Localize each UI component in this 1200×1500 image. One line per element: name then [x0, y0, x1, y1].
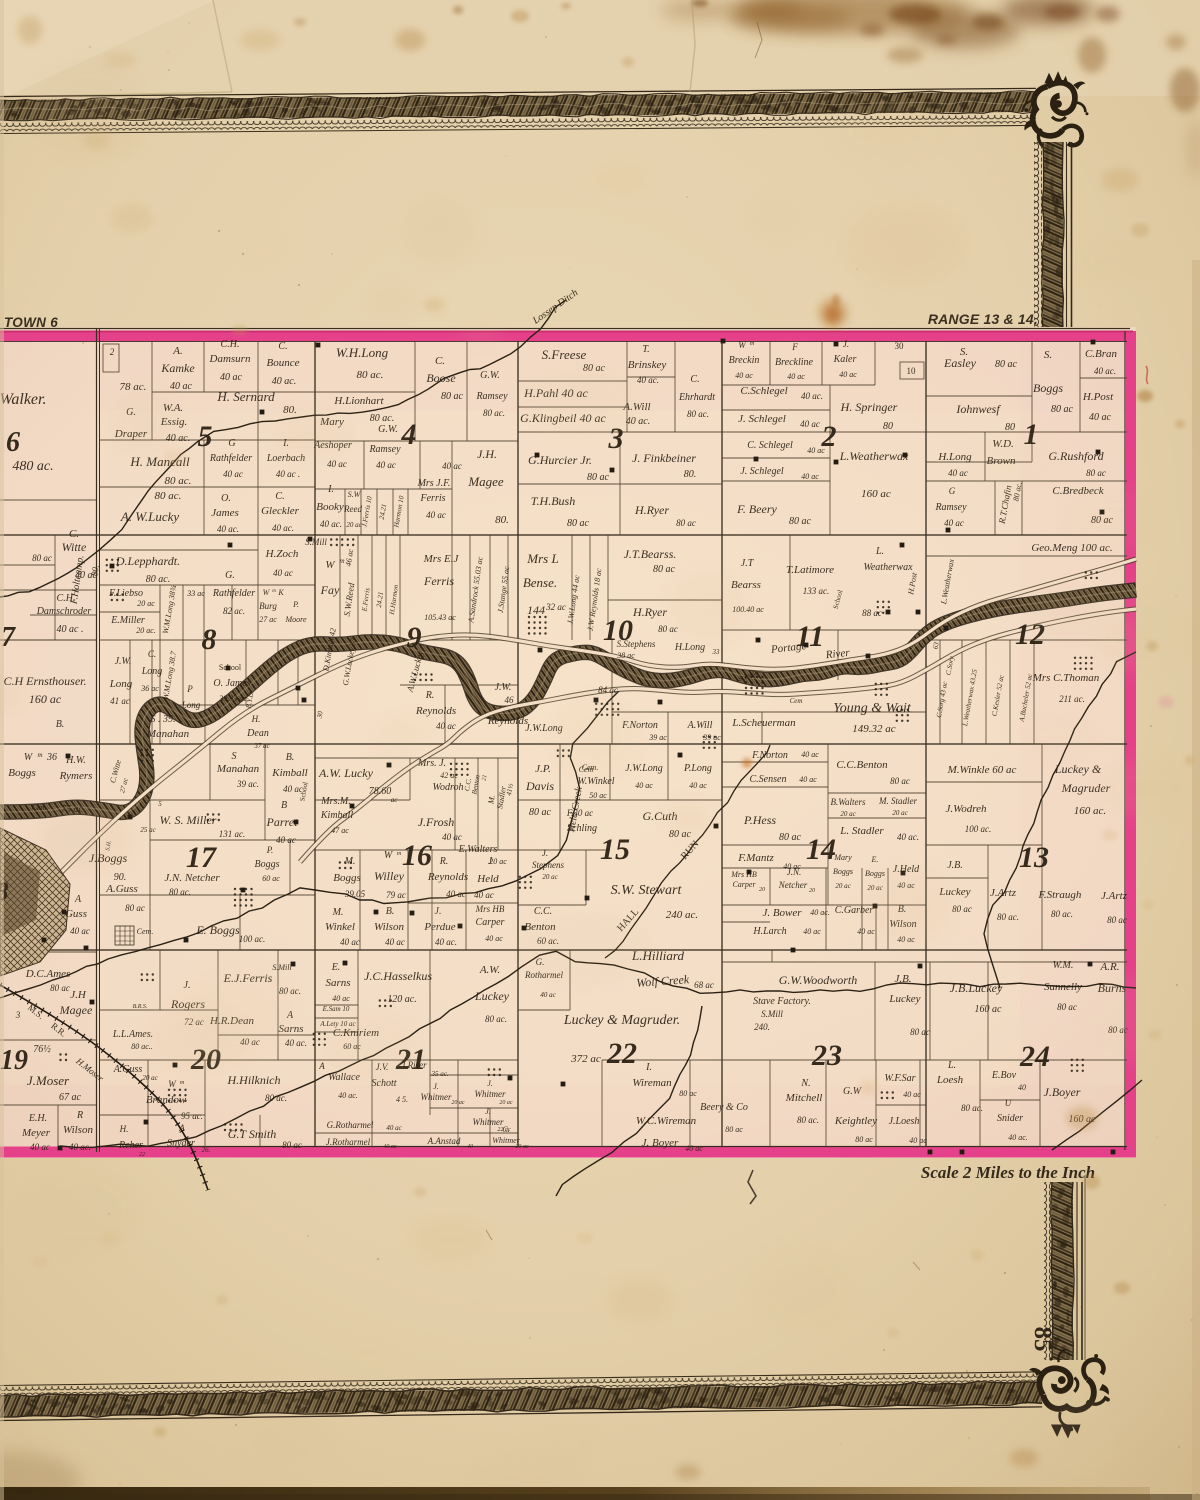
svg-text:80 ac.: 80 ac. [483, 408, 505, 418]
svg-text:S.Mill: S.Mill [272, 963, 292, 972]
svg-text:m: m [37, 751, 42, 759]
svg-text:30: 30 [895, 341, 905, 351]
svg-text:D.C.Ames: D.C.Ames [25, 968, 71, 980]
svg-text:A.R.: A.R. [1100, 961, 1120, 973]
svg-text:TOWN 6: TOWN 6 [4, 315, 58, 330]
svg-text:Walker.: Walker. [0, 391, 46, 408]
svg-text:J.C.Hasselkus: J.C.Hasselkus [364, 969, 432, 983]
svg-text:80 ac: 80 ac [50, 983, 70, 993]
svg-text:46: 46 [505, 695, 515, 705]
svg-text:80 ac: 80 ac [676, 518, 696, 528]
svg-text:40 ac: 40 ac [385, 937, 405, 947]
svg-text:C.C.Benton: C.C.Benton [836, 759, 888, 771]
svg-text:Bense.: Bense. [523, 575, 557, 590]
svg-text:Whitmer: Whitmer [473, 1117, 504, 1127]
svg-text:Rathfelder: Rathfelder [209, 453, 252, 464]
svg-text:40 ac: 40 ac [70, 926, 90, 936]
svg-text:80 ac: 80 ac [789, 516, 812, 527]
svg-text:G: G [228, 438, 235, 449]
svg-text:15: 15 [600, 833, 630, 866]
svg-text:H.Long: H.Long [674, 642, 705, 653]
svg-text:80 ac.: 80 ac. [797, 1115, 819, 1125]
svg-text:Booky: Booky [316, 501, 344, 513]
svg-text:105.43 ac: 105.43 ac [424, 613, 456, 622]
svg-text:76½: 76½ [33, 1044, 51, 1055]
svg-text:Whitmer: Whitmer [421, 1092, 452, 1102]
svg-text:Winkel: Winkel [325, 921, 355, 933]
svg-text:A: A [178, 1123, 185, 1133]
svg-text:40 ac.: 40 ac. [320, 519, 342, 529]
svg-text:H.Ryer: H.Ryer [634, 503, 669, 517]
svg-text:H.Lionhart: H.Lionhart [333, 395, 384, 407]
svg-text:ac: ac [391, 796, 399, 804]
svg-text:C.H.: C.H. [221, 339, 240, 350]
svg-text:E.Sam 10: E.Sam 10 [322, 1005, 350, 1013]
svg-text:80 ac: 80 ac [653, 564, 676, 575]
svg-text:40 ac.: 40 ac. [338, 1091, 358, 1100]
svg-text:68 ac: 68 ac [694, 980, 714, 990]
svg-text:Luckey: Luckey [888, 993, 920, 1005]
svg-text:J.: J. [485, 1107, 491, 1116]
svg-text:80 ac: 80 ac [1086, 468, 1106, 478]
svg-text:J.W.: J.W. [495, 682, 512, 693]
svg-text:C.Schlegel: C.Schlegel [740, 385, 787, 397]
svg-text:H. Springer: H. Springer [840, 400, 898, 414]
svg-text:20 ac: 20 ac [142, 1074, 158, 1082]
svg-text:A.Guss: A.Guss [105, 883, 137, 895]
svg-text:J.N.: J.N. [787, 867, 802, 877]
svg-text:8: 8 [202, 623, 217, 656]
svg-text:40 ac.: 40 ac. [801, 391, 823, 401]
svg-text:39.05: 39.05 [344, 889, 366, 899]
svg-text:Whitmer: Whitmer [475, 1089, 506, 1099]
svg-text:39 ac.: 39 ac. [236, 779, 259, 789]
svg-text:80 ac: 80 ac [125, 903, 145, 913]
svg-text:25 ac: 25 ac [140, 826, 156, 834]
svg-text:F.Norton: F.Norton [751, 750, 788, 761]
svg-text:372 ac: 372 ac [570, 1053, 601, 1065]
svg-text:40 ac.: 40 ac. [217, 524, 239, 534]
svg-text:Kaler: Kaler [833, 354, 857, 365]
svg-text:80 ac.: 80 ac. [1051, 909, 1073, 919]
svg-text:40 ac: 40 ac [803, 927, 821, 936]
svg-text:20 ac: 20 ac [137, 599, 155, 608]
svg-text:Rymers: Rymers [59, 770, 93, 782]
svg-text:40 ac .: 40 ac . [57, 624, 84, 635]
svg-text:Stephens: Stephens [532, 860, 564, 870]
svg-text:Ramsey: Ramsey [475, 391, 508, 402]
svg-text:80 ac.: 80 ac. [997, 912, 1019, 922]
svg-text:Iohnwesf: Iohnwesf [955, 402, 1001, 416]
svg-text:J.: J. [843, 339, 849, 349]
svg-text:Mrs L: Mrs L [526, 551, 558, 566]
svg-text:Mrs C.Thoman: Mrs C.Thoman [1032, 672, 1100, 684]
svg-text:20 ac: 20 ac [840, 810, 856, 818]
svg-text:80 ac: 80 ac [952, 904, 972, 914]
svg-text:Weatherwax: Weatherwax [863, 562, 913, 573]
svg-text:40 ac: 40 ac [220, 372, 243, 383]
svg-text:L.: L. [875, 546, 884, 557]
svg-text:20: 20 [759, 887, 765, 893]
svg-text:J: J [488, 856, 493, 867]
svg-text:A.W.: A.W. [479, 964, 500, 976]
svg-text:I.: I. [327, 484, 334, 495]
svg-text:80: 80 [883, 421, 893, 432]
svg-text:33 ac: 33 ac [186, 589, 205, 598]
svg-text:J.P.: J.P. [535, 763, 551, 775]
svg-text:Ramsey: Ramsey [934, 502, 967, 513]
svg-text:20 ac: 20 ac [515, 1144, 529, 1150]
svg-text:40 ac.: 40 ac. [272, 523, 294, 533]
svg-text:L. Stadler: L. Stadler [839, 825, 884, 837]
svg-text:M. Stadler: M. Stadler [878, 796, 917, 806]
svg-text:2: 2 [110, 347, 115, 357]
svg-text:20: 20 [809, 888, 815, 894]
svg-text:J.B.Luckey: J.B.Luckey [950, 981, 1003, 995]
svg-text:A: A [318, 1061, 325, 1071]
svg-text:Wireman: Wireman [632, 1077, 672, 1089]
svg-text:Kamke: Kamke [160, 361, 195, 375]
svg-text:40 ac: 40 ac [442, 461, 462, 471]
svg-text:m: m [180, 1080, 185, 1086]
svg-text:131 ac.: 131 ac. [219, 829, 246, 839]
svg-text:40 ac: 40 ac [1089, 412, 1112, 423]
svg-text:80: 80 [1005, 422, 1015, 433]
svg-text:240 ac.: 240 ac. [666, 909, 698, 921]
svg-text:Magee: Magee [467, 474, 504, 489]
svg-text:133 ac.: 133 ac. [803, 586, 830, 596]
svg-text:Boose: Boose [426, 371, 456, 385]
svg-text:Reher: Reher [118, 1140, 143, 1151]
svg-text:S.W: S.W [348, 490, 362, 499]
svg-text:Cem: Cem [790, 697, 803, 705]
svg-text:40 ac: 40 ac [801, 472, 819, 481]
svg-text:C.: C. [502, 1125, 509, 1134]
svg-text:S.W. Stewart: S.W. Stewart [611, 883, 683, 898]
svg-text:Held: Held [476, 873, 499, 885]
svg-text:80 ac: 80 ac [529, 807, 552, 818]
svg-text:3: 3 [15, 1010, 21, 1020]
svg-text:40 ac: 40 ac [635, 781, 653, 790]
svg-text:A.Anstad: A.Anstad [427, 1136, 461, 1146]
svg-text:Ramsey: Ramsey [368, 444, 401, 455]
svg-text:22: 22 [139, 1152, 145, 1158]
svg-text:Sarns: Sarns [325, 977, 350, 989]
svg-text:S.Freese: S.Freese [542, 347, 587, 362]
svg-text:80 ac: 80 ac [567, 518, 590, 529]
svg-text:Mrs HB: Mrs HB [475, 904, 505, 914]
svg-text:Long: Long [181, 700, 201, 710]
svg-text:40 ac: 40 ac [485, 934, 503, 943]
svg-text:J.H: J.H [70, 989, 87, 1001]
svg-text:W.H.Long: W.H.Long [336, 345, 389, 360]
svg-text:80 ac.: 80 ac. [961, 1103, 983, 1113]
svg-text:144: 144 [527, 603, 545, 617]
svg-text:40 ac.: 40 ac. [69, 1142, 91, 1152]
svg-text:J.H.: J.H. [477, 447, 497, 461]
svg-text:W.F.Sar: W.F.Sar [884, 1073, 915, 1084]
svg-text:Kimball: Kimball [271, 767, 307, 779]
svg-text:80.: 80. [495, 514, 509, 526]
svg-text:C.: C. [278, 341, 287, 352]
svg-text:F. Beery: F. Beery [736, 502, 777, 516]
svg-text:J.: J. [433, 1082, 439, 1091]
svg-text:40 ac .: 40 ac . [276, 469, 300, 479]
svg-text:100 ac.: 100 ac. [965, 824, 992, 834]
svg-text:Scale 2 Miles to the Inch: Scale 2 Miles to the Inch [921, 1163, 1095, 1182]
svg-text:L.: L. [947, 1060, 956, 1071]
svg-text:40 ac: 40 ac [442, 832, 462, 842]
svg-text:O. James: O. James [213, 678, 250, 689]
svg-text:40 ac: 40 ac [903, 1090, 921, 1099]
svg-text:4: 4 [401, 418, 417, 451]
svg-text:40 ac: 40 ac [807, 446, 825, 455]
svg-text:E.: E. [871, 855, 879, 864]
svg-text:40 ac: 40 ac [386, 1124, 402, 1132]
svg-text:37 ac: 37 ac [253, 742, 270, 750]
svg-text:80 ac.: 80 ac. [687, 409, 709, 419]
svg-text:82 ac.: 82 ac. [223, 606, 245, 616]
svg-text:40 ac.: 40 ac. [897, 832, 919, 842]
svg-text:U: U [1005, 1098, 1012, 1108]
svg-text:80.: 80. [89, 564, 100, 577]
svg-text:Easley: Easley [943, 356, 977, 370]
svg-text:20 ac: 20 ac [499, 1100, 513, 1106]
svg-text:149.32 ac: 149.32 ac [852, 723, 896, 735]
svg-text:J.Loesh: J.Loesh [889, 1116, 920, 1127]
svg-text:C.Sensen: C.Sensen [750, 774, 787, 785]
svg-text:40 ac: 40 ac [426, 510, 446, 520]
svg-text:Long: Long [109, 678, 133, 690]
svg-text:211 ac.: 211 ac. [1059, 694, 1085, 704]
svg-text:5: 5 [198, 420, 213, 453]
svg-text:Wilson: Wilson [374, 921, 404, 933]
svg-text:11: 11 [796, 620, 824, 653]
svg-text:26.: 26. [202, 1146, 211, 1154]
svg-text:G: G [949, 486, 956, 496]
svg-text:60 ac: 60 ac [262, 874, 280, 883]
svg-text:Young & Wait: Young & Wait [833, 701, 912, 716]
svg-text:80 ac: 80 ac [890, 776, 910, 786]
svg-text:Manahan: Manahan [216, 763, 260, 775]
svg-text:RANGE 13 & 14.: RANGE 13 & 14. [928, 311, 1038, 327]
svg-text:G.T Smith: G.T Smith [228, 1127, 276, 1141]
svg-text:80 ac: 80 ac [1057, 1002, 1077, 1012]
svg-text:39 ac: 39 ac [702, 733, 721, 742]
svg-text:J.: J. [542, 848, 548, 858]
svg-text:Witte: Witte [62, 540, 87, 554]
svg-text:C.: C. [275, 491, 284, 502]
svg-text:C.H.: C.H. [57, 593, 76, 604]
svg-text:80 ac: 80 ac [1051, 404, 1074, 415]
svg-text:E.Bov: E.Bov [991, 1070, 1017, 1081]
svg-text:J. Finkbeiner: J. Finkbeiner [632, 451, 696, 465]
svg-text:Boggs: Boggs [1033, 381, 1063, 395]
svg-text:40 ac: 40 ac [735, 371, 753, 380]
svg-text:H.Zoch: H.Zoch [265, 548, 299, 560]
svg-text:40 ac.: 40 ac. [1094, 366, 1116, 376]
svg-text:C.: C. [69, 528, 79, 540]
svg-text:Luckey & Magruder.: Luckey & Magruder. [563, 1013, 680, 1028]
svg-text:Sannelly: Sannelly [1044, 981, 1082, 993]
svg-text:H.Post: H.Post [1082, 391, 1114, 403]
svg-text:J.Boyer: J.Boyer [1044, 1085, 1081, 1099]
svg-text:80 ac: 80 ac [1107, 915, 1127, 925]
svg-text:40 ac: 40 ac [327, 459, 347, 469]
svg-text:T.: T. [642, 344, 649, 355]
svg-text:23: 23 [811, 1039, 842, 1072]
svg-text:J.Frosh: J.Frosh [418, 815, 455, 829]
svg-text:40 ac: 40 ac [948, 468, 968, 478]
svg-text:40 ac: 40 ac [332, 994, 350, 1003]
svg-text:H.Hilknich: H.Hilknich [227, 1073, 281, 1087]
svg-text:Cem.: Cem. [32, 803, 49, 812]
svg-text:Snyder: Snyder [167, 1138, 195, 1149]
svg-text:40 ac: 40 ac [540, 991, 556, 999]
svg-text:Magee: Magee [59, 1003, 93, 1017]
svg-text:40 ac.: 40 ac. [1008, 1133, 1028, 1142]
svg-text:40 ac.: 40 ac. [435, 937, 457, 947]
svg-text:Willey: Willey [374, 869, 405, 883]
svg-text:Luckey: Luckey [474, 989, 510, 1003]
svg-text:B: B [281, 800, 287, 811]
svg-text:40 ac: 40 ac [801, 750, 819, 759]
svg-text:L.Scheuerman: L.Scheuerman [731, 717, 796, 729]
svg-text:Kimball: Kimball [320, 810, 353, 821]
svg-text:J.Wodreh: J.Wodreh [945, 803, 987, 815]
svg-text:95 ac.: 95 ac. [181, 1111, 203, 1121]
svg-text:20 ac: 20 ac [451, 1100, 465, 1106]
svg-text:240.: 240. [754, 1022, 770, 1032]
svg-text:80 ac.: 80 ac. [169, 887, 191, 897]
svg-text:J.W.: J.W. [115, 656, 132, 667]
svg-text:J.T.Bearss.: J.T.Bearss. [624, 547, 677, 561]
svg-text:Damschroder: Damschroder [36, 606, 92, 617]
svg-text:H.: H. [119, 1124, 129, 1134]
svg-text:160 ac: 160 ac [29, 692, 62, 706]
svg-text:9: 9 [407, 621, 422, 654]
svg-text:80 ac.: 80 ac. [485, 1014, 507, 1024]
svg-text:R.: R. [425, 690, 435, 701]
svg-text:S.Mill: S.Mill [761, 1009, 783, 1019]
svg-text:Breckline: Breckline [775, 357, 814, 368]
svg-text:Moore: Moore [284, 615, 306, 624]
svg-text:5: 5 [158, 800, 162, 808]
svg-text:Loesh: Loesh [936, 1074, 964, 1086]
svg-text:Brinskey: Brinskey [628, 359, 667, 371]
svg-text:James: James [211, 507, 239, 519]
svg-text:C.: C. [148, 649, 156, 659]
svg-text:14: 14 [806, 833, 836, 866]
svg-text:120 ac.: 120 ac. [387, 994, 416, 1005]
svg-text:40 ac.: 40 ac. [285, 1038, 307, 1048]
svg-text:S: S [232, 751, 237, 762]
svg-text:S.: S. [1044, 349, 1052, 361]
svg-text:80 ac.: 80 ac. [146, 574, 170, 585]
svg-text:Ehrhardt: Ehrhardt [678, 392, 715, 403]
svg-text:m: m [397, 851, 402, 857]
svg-text:Carper: Carper [476, 917, 505, 928]
svg-text:J.B.: J.B. [947, 860, 963, 871]
svg-text:80 ac.: 80 ac. [155, 490, 182, 502]
svg-text:84 ac: 84 ac [598, 685, 618, 695]
svg-text:W.M.: W.M. [1053, 960, 1074, 971]
svg-text:40 ac.: 40 ac. [637, 375, 659, 385]
svg-text:Boggs: Boggs [255, 859, 280, 870]
svg-text:Davis: Davis [525, 779, 554, 793]
svg-text:Keightley: Keightley [834, 1115, 877, 1127]
svg-text:J.Rotharmel: J.Rotharmel [326, 1137, 371, 1147]
svg-text:J.Moser: J.Moser [27, 1073, 70, 1088]
svg-text:F.Liebso: F.Liebso [108, 588, 143, 599]
svg-text:T.Latimore: T.Latimore [786, 564, 834, 576]
svg-text:Mitchell: Mitchell [785, 1092, 823, 1104]
svg-text:B.: B. [56, 719, 65, 730]
svg-text:Wodroh: Wodroh [433, 782, 464, 793]
svg-text:Boggs: Boggs [333, 872, 361, 884]
svg-text:Schling: Schling [567, 823, 597, 834]
svg-text:40 ac.: 40 ac. [272, 376, 296, 387]
svg-text:J.N. Netcher: J.N. Netcher [164, 872, 220, 884]
svg-text:Luckey &: Luckey & [1054, 762, 1102, 776]
svg-text:40 ac: 40 ac [223, 469, 243, 479]
svg-text:J.: J. [487, 1079, 493, 1088]
svg-text:Bounce: Bounce [267, 357, 300, 369]
svg-text:J. Boyer: J. Boyer [642, 1137, 679, 1149]
svg-text:80 ac.: 80 ac. [265, 1093, 287, 1103]
svg-text:M.Winkle 60 ac: M.Winkle 60 ac [947, 764, 1017, 776]
svg-text:42 ac: 42 ac [440, 771, 458, 780]
svg-text:H.Ryer: H.Ryer [632, 605, 667, 619]
svg-text:13: 13 [1019, 841, 1049, 874]
svg-text:P.Long: P.Long [683, 763, 712, 774]
svg-text:40 ac: 40 ac [170, 381, 193, 392]
svg-text:Parret: Parret [266, 815, 299, 829]
svg-text:O.: O. [221, 493, 231, 504]
svg-text:Meyer: Meyer [21, 1127, 51, 1139]
svg-text:80 ac: 80 ac [995, 359, 1018, 370]
svg-text:H.: H. [251, 714, 261, 724]
svg-text:80 ac: 80 ac [725, 1125, 743, 1134]
svg-text:B.: B. [386, 906, 395, 917]
svg-text:80 ac.: 80 ac. [370, 413, 394, 424]
svg-text:A.Guss: A.Guss [113, 1064, 143, 1075]
svg-text:Long: Long [141, 666, 163, 677]
svg-text:S.Stephens: S.Stephens [617, 639, 656, 649]
svg-text:C.: C. [435, 355, 445, 367]
svg-text:85: 85 [1029, 1327, 1056, 1352]
svg-text:39.93 ac: 39.93 ac [218, 694, 247, 703]
svg-text:W.C.Wireman: W.C.Wireman [636, 1115, 697, 1127]
svg-text:80 ac: 80 ac [441, 391, 464, 402]
svg-text:Manahan: Manahan [146, 728, 190, 740]
svg-text:D.Lepphardt.: D.Lepphardt. [115, 554, 180, 568]
svg-text:40 ac: 40 ac [383, 1143, 397, 1150]
svg-text:T.H.Bush: T.H.Bush [531, 494, 575, 508]
svg-text:F.Mantz: F.Mantz [737, 852, 774, 864]
svg-text:J. Schlegel: J. Schlegel [740, 466, 784, 477]
svg-text:W: W [325, 559, 335, 571]
svg-text:40 ac: 40 ac [376, 460, 396, 470]
svg-text:J. Schlegel: J. Schlegel [738, 413, 786, 425]
svg-text:22: 22 [606, 1037, 637, 1070]
svg-text:R: R [76, 1110, 83, 1121]
svg-text:4 5.: 4 5. [396, 1095, 408, 1104]
svg-text:G.Rotharmel: G.Rotharmel [327, 1120, 374, 1130]
svg-text:m: m [272, 589, 276, 594]
svg-text:40 ac: 40 ac [787, 372, 805, 381]
svg-text:Burg: Burg [259, 601, 277, 611]
